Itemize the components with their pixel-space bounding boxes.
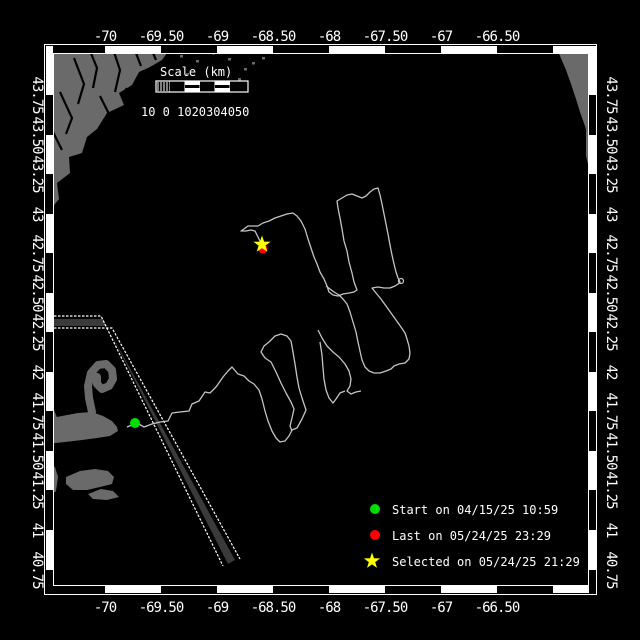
lat-label-left: 42.50	[29, 274, 45, 312]
lon-label-bottom: -68.50	[251, 600, 296, 616]
frame-zebra-bottom	[161, 586, 217, 593]
frame-zebra-right	[589, 174, 596, 214]
lat-label-left: 42.25	[29, 313, 45, 351]
lon-label-top: -67.50	[363, 29, 408, 45]
coast-islet	[262, 57, 265, 60]
lat-label-right: 42	[603, 365, 619, 380]
lon-label-top: -67	[430, 29, 453, 45]
frame-zebra-left	[46, 332, 53, 372]
lon-label-top: -69.50	[139, 29, 184, 45]
frame-zebra-left	[46, 372, 53, 411]
lat-label-left: 43.75	[29, 76, 45, 114]
lat-label-left: 43.50	[29, 116, 45, 154]
frame-zebra-top	[329, 46, 385, 53]
frame-zebra-bottom	[441, 586, 497, 593]
start-marker[interactable]	[130, 418, 140, 428]
frame-zebra-left	[46, 174, 53, 214]
legend-start-label: Start on 04/15/25 10:59	[392, 503, 558, 517]
lon-label-top: -69	[206, 29, 229, 45]
frame-zebra-left	[46, 530, 53, 570]
frame-zebra-bottom	[46, 586, 105, 593]
legend-last-label: Last on 05/24/25 23:29	[392, 529, 551, 543]
lon-label-bottom: -70	[94, 600, 117, 616]
frame-zebra-left	[46, 253, 53, 293]
frame-zebra-left	[46, 570, 53, 593]
frame-zebra-right	[589, 214, 596, 253]
map-window: -70-69.50-69-68.50-68-67.50-67-66.50-70-…	[0, 0, 640, 640]
frame-zebra-top	[46, 46, 105, 53]
frame-zebra-right	[589, 332, 596, 372]
lon-label-bottom: -68	[318, 600, 341, 616]
coast-islet	[196, 60, 199, 63]
lat-label-right: 40.75	[603, 551, 619, 589]
lat-label-left: 42	[29, 365, 45, 380]
frame-zebra-bottom	[273, 586, 329, 593]
frame-zebra-left	[46, 135, 53, 174]
frame-zebra-right	[589, 530, 596, 570]
frame-zebra-right	[589, 490, 596, 530]
frame-zebra-bottom	[217, 586, 273, 593]
lon-label-top: -66.50	[475, 29, 520, 45]
coast-islet	[228, 58, 231, 61]
frame-zebra-right	[589, 411, 596, 451]
frame-zebra-top	[273, 46, 329, 53]
lat-label-right: 42.75	[603, 234, 619, 272]
frame-zebra-right	[589, 95, 596, 135]
frame-zebra-left	[46, 46, 53, 95]
frame-zebra-right	[589, 451, 596, 490]
frame-zebra-right	[589, 135, 596, 174]
frame-zebra-left	[46, 490, 53, 530]
lat-label-left: 42.75	[29, 234, 45, 272]
frame-zebra-right	[589, 46, 596, 95]
lon-label-bottom: -69.50	[139, 600, 184, 616]
scale-bar-segment	[230, 81, 248, 92]
coast-islet	[244, 68, 247, 71]
lat-label-left: 40.75	[29, 551, 45, 589]
lon-label-bottom: -69	[206, 600, 229, 616]
frame-zebra-bottom	[497, 586, 553, 593]
legend-start-marker	[370, 504, 380, 514]
frame-zebra-top	[161, 46, 217, 53]
lat-label-right: 43	[603, 207, 619, 222]
scale-tick-labels: 10 0 1020304050	[141, 105, 249, 119]
frame-zebra-top	[385, 46, 441, 53]
lat-label-right: 42.25	[603, 313, 619, 351]
coast-islet	[180, 55, 183, 58]
lon-label-bottom: -67	[430, 600, 453, 616]
frame-zebra-left	[46, 451, 53, 490]
lat-label-left: 41.25	[29, 471, 45, 509]
lon-label-top: -70	[94, 29, 117, 45]
scale-bar-segment	[170, 81, 185, 92]
lat-label-left: 41.75	[29, 392, 45, 430]
frame-zebra-left	[46, 411, 53, 451]
legend: Start on 04/15/25 10:59 Last on 05/24/25…	[364, 503, 580, 569]
lon-label-bottom: -67.50	[363, 600, 408, 616]
lon-label-top: -68	[318, 29, 341, 45]
lat-label-left: 43	[29, 207, 45, 222]
frame-zebra-top	[105, 46, 161, 53]
frame-zebra-bottom	[329, 586, 385, 593]
legend-last-marker	[370, 530, 380, 540]
frame-zebra-left	[46, 95, 53, 135]
coast-islet	[238, 78, 241, 81]
frame-zebra-right	[589, 372, 596, 411]
map-canvas: -70-69.50-69-68.50-68-67.50-67-66.50-70-…	[0, 0, 640, 640]
lat-label-left: 43.25	[29, 155, 45, 193]
lat-label-left: 41	[29, 523, 45, 538]
lat-label-left: 41.50	[29, 432, 45, 470]
lat-label-right: 41	[603, 523, 619, 538]
frame-zebra-left	[46, 214, 53, 253]
scale-bar-stripe	[215, 85, 230, 88]
legend-selected-label: Selected on 05/24/25 21:29	[392, 555, 580, 569]
frame-zebra-top	[217, 46, 273, 53]
frame-zebra-top	[441, 46, 497, 53]
lon-label-bottom: -66.50	[475, 600, 520, 616]
frame-zebra-right	[589, 293, 596, 332]
coast-islet	[252, 62, 255, 65]
lat-label-right: 41.25	[603, 471, 619, 509]
scale-bar-stripe	[185, 85, 200, 88]
frame-zebra-right	[589, 570, 596, 593]
lat-label-right: 42.50	[603, 274, 619, 312]
frame-zebra-left	[46, 293, 53, 332]
lon-label-top: -68.50	[251, 29, 296, 45]
frame-zebra-bottom	[385, 586, 441, 593]
scale-title: Scale (km)	[160, 65, 232, 79]
lat-label-right: 41.75	[603, 392, 619, 430]
lat-label-right: 41.50	[603, 432, 619, 470]
frame-zebra-top	[497, 46, 553, 53]
lat-label-right: 43.75	[603, 76, 619, 114]
frame-zebra-right	[589, 253, 596, 293]
lat-label-right: 43.50	[603, 116, 619, 154]
scale-bar	[156, 81, 248, 92]
lat-label-right: 43.25	[603, 155, 619, 193]
scale-bar-segment	[200, 81, 215, 92]
frame-zebra-bottom	[105, 586, 161, 593]
